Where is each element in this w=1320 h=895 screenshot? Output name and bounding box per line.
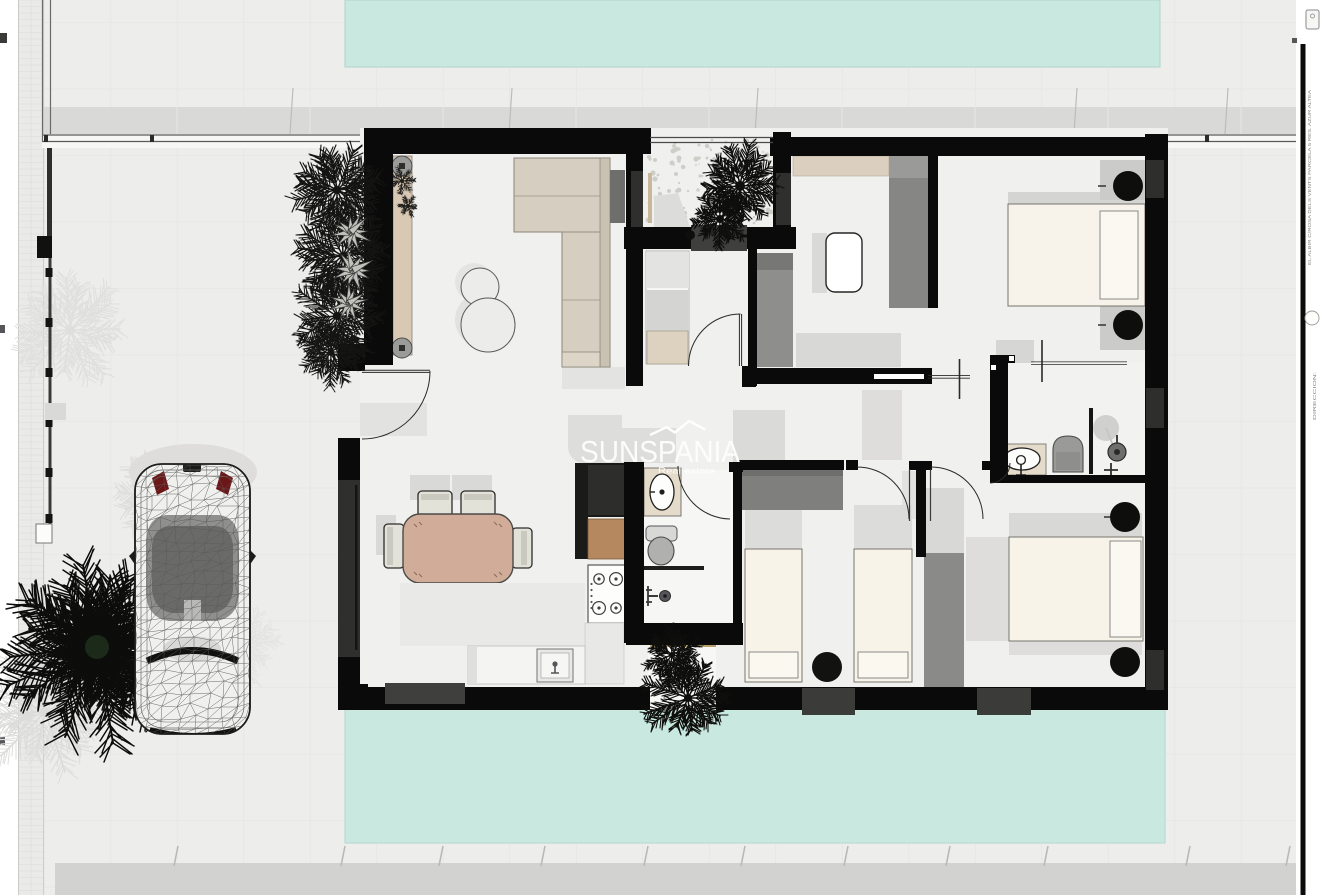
svg-text:DIRECCION:: DIRECCION: bbox=[1312, 372, 1317, 420]
svg-text:EL ALBIR C/ROSA DELS VENTS PAR: EL ALBIR C/ROSA DELS VENTS PARCELA 5 RES… bbox=[1307, 89, 1312, 265]
svg-text:Real estate: Real estate bbox=[658, 467, 716, 476]
svg-text:SUNSPANIA: SUNSPANIA bbox=[580, 435, 741, 469]
